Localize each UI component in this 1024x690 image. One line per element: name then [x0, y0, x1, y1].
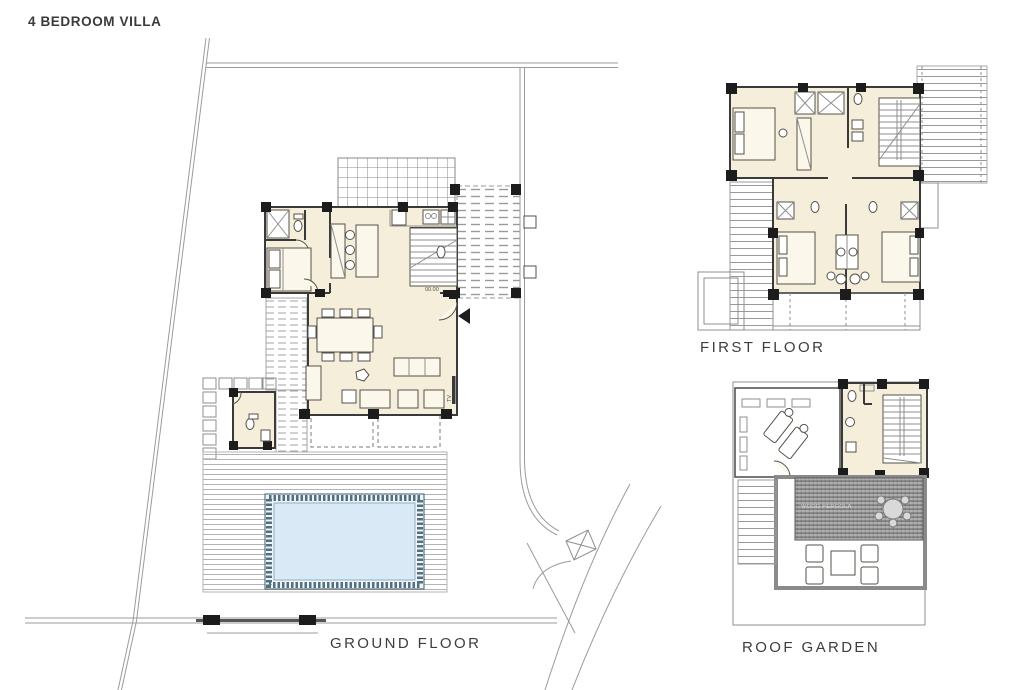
pergola-label: WOOD PERGOLA: [801, 504, 852, 510]
toilet-icon: [848, 391, 856, 402]
armchair-icon: [806, 545, 823, 562]
driveway-road: [527, 484, 661, 690]
swimming-pool: [265, 494, 424, 589]
kitchen-island-icon: [356, 225, 378, 277]
armchair-icon: [806, 567, 823, 584]
toilet-icon: [437, 246, 445, 258]
table-icon: [831, 551, 855, 575]
first-floor-stairs: [879, 98, 920, 166]
armchair-icon: [424, 390, 444, 408]
sofa-icon: [360, 390, 390, 408]
pool-house: [229, 388, 275, 450]
level-marker: 00.00: [425, 287, 439, 293]
armchair-icon: [861, 567, 878, 584]
ground-floor-label: GROUND FLOOR: [330, 635, 481, 652]
armchair-icon: [398, 390, 418, 408]
toilet-icon: [294, 221, 302, 232]
side-ledge: [920, 183, 938, 228]
roof-lounge-area: [735, 388, 840, 477]
first-floor-roof-below: [730, 182, 773, 330]
floor-plan-drawing: TV 00.00 GROUND: [0, 0, 1024, 690]
roof-garden-plan: WOOD PERGOLA: [733, 379, 929, 625]
table-icon: [317, 318, 373, 352]
armchair-icon: [861, 545, 878, 562]
roof-lower-steps: [738, 480, 776, 564]
first-floor-plan: [698, 66, 987, 330]
entrance-arrow-icon: [458, 308, 470, 324]
toilet-icon: [811, 202, 819, 213]
toilet-icon: [854, 94, 862, 105]
ground-side-deck: [450, 184, 521, 298]
first-floor-label: FIRST FLOOR: [700, 339, 825, 356]
first-floor-pergola: [917, 66, 987, 183]
floor-plan-sheet: 4 BEDROOM VILLA: [0, 0, 1024, 690]
sofa-icon: [306, 366, 321, 400]
roof-pergola: WOOD PERGOLA: [795, 478, 923, 540]
ground-stairs: [410, 228, 457, 286]
tv-label: TV: [447, 395, 453, 402]
sofa-icon: [394, 358, 440, 376]
driveway-gate: [566, 530, 596, 560]
toilet-icon: [869, 202, 877, 213]
roof-garden-label: ROOF GARDEN: [742, 639, 880, 656]
roof-stair-bulkhead: [838, 379, 929, 479]
toilet-icon: [246, 419, 254, 430]
ground-trellis-pergola: [338, 158, 455, 208]
